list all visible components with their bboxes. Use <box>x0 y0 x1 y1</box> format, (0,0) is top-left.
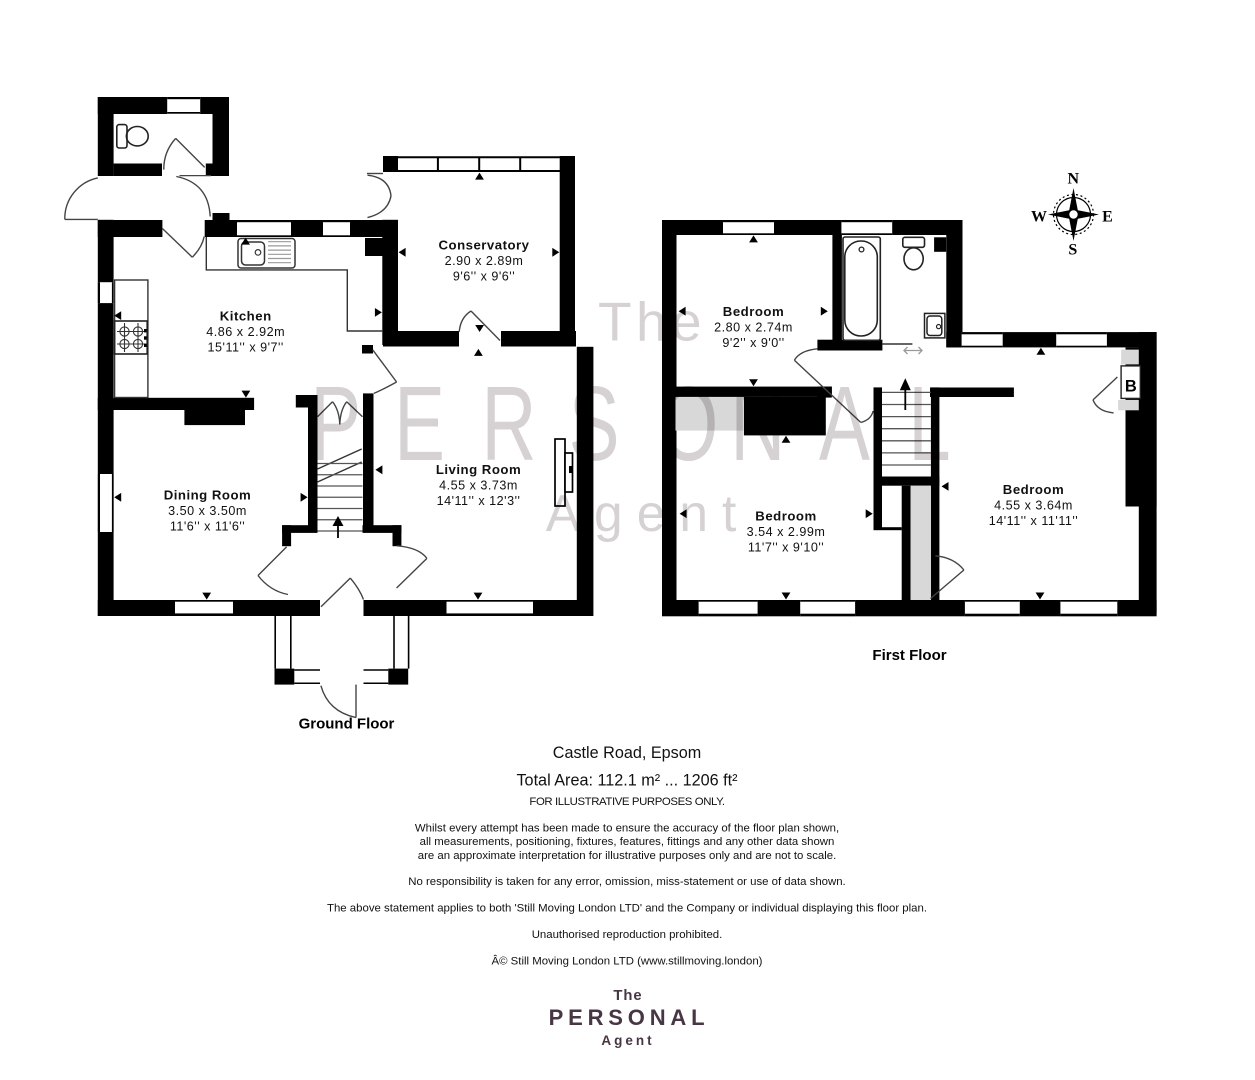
svg-text:all measurements, positioning,: all measurements, positioning, fixtures,… <box>420 836 835 848</box>
svg-text:W: W <box>1031 209 1047 226</box>
svg-text:Conservatory: Conservatory <box>438 237 529 252</box>
svg-text:B: B <box>1125 378 1137 396</box>
svg-text:E: E <box>1102 209 1113 226</box>
svg-text:L: L <box>908 364 950 483</box>
svg-text:Kitchen: Kitchen <box>220 308 272 323</box>
svg-text:O: O <box>659 364 718 483</box>
svg-text:S: S <box>569 364 620 483</box>
svg-text:First Floor: First Floor <box>872 647 946 664</box>
svg-text:The: The <box>613 988 642 1004</box>
svg-text:Whilst every attempt has been: Whilst every attempt has been made to en… <box>415 823 839 835</box>
svg-text:11'6'' x 11'6'': 11'6'' x 11'6'' <box>170 519 245 533</box>
svg-text:Dining Room: Dining Room <box>164 487 252 502</box>
svg-text:14'11'' x 11'11'': 14'11'' x 11'11'' <box>989 514 1078 528</box>
svg-text:Unauthorised reproduction proh: Unauthorised reproduction prohibited. <box>532 929 723 941</box>
svg-text:Agent: Agent <box>601 1033 654 1048</box>
svg-text:N: N <box>730 364 785 483</box>
svg-text:Ground Floor: Ground Floor <box>299 716 395 733</box>
svg-text:4.86 x 2.92m: 4.86 x 2.92m <box>206 325 285 339</box>
svg-text:9'6'' x 9'6'': 9'6'' x 9'6'' <box>453 269 515 283</box>
svg-text:Bedroom: Bedroom <box>755 509 816 524</box>
svg-text:4.55 x 3.64m: 4.55 x 3.64m <box>994 498 1073 512</box>
svg-text:are an approximate interpretat: are an approximate interpretation for il… <box>418 850 837 862</box>
svg-text:Bedroom: Bedroom <box>723 304 784 319</box>
svg-text:E: E <box>394 364 445 483</box>
svg-text:Â© Still Moving London LTD (ww: Â© Still Moving London LTD (www.stillmov… <box>492 955 763 968</box>
svg-text:The: The <box>598 291 706 353</box>
svg-text:S: S <box>1068 242 1077 259</box>
svg-text:11'7'' x 9'10'': 11'7'' x 9'10'' <box>748 541 824 555</box>
svg-text:2.90 x 2.89m: 2.90 x 2.89m <box>445 254 524 268</box>
svg-text:N: N <box>1068 171 1080 188</box>
svg-text:3.54 x 2.99m: 3.54 x 2.99m <box>747 525 826 539</box>
svg-text:P: P <box>310 364 361 483</box>
svg-text:A: A <box>819 364 870 483</box>
svg-text:14'11'' x 12'3'': 14'11'' x 12'3'' <box>437 494 521 508</box>
svg-text:Bedroom: Bedroom <box>1003 482 1064 497</box>
svg-text:Agent: Agent <box>546 484 751 542</box>
svg-text:The above statement applies to: The above statement applies to both 'Sti… <box>327 903 927 915</box>
svg-text:2.80 x 2.74m: 2.80 x 2.74m <box>714 321 793 335</box>
svg-text:3.50 x 3.50m: 3.50 x 3.50m <box>168 504 247 518</box>
svg-text:15'11'' x 9'7'': 15'11'' x 9'7'' <box>208 340 284 354</box>
svg-text:9'2'' x 9'0'': 9'2'' x 9'0'' <box>722 336 784 350</box>
svg-text:No responsibility is taken for: No responsibility is taken for any error… <box>408 876 845 888</box>
svg-text:Total Area: 112.1 m² ... 1206: Total Area: 112.1 m² ... 1206 ft² <box>516 772 738 790</box>
svg-text:PERSONAL: PERSONAL <box>549 1005 710 1030</box>
svg-text:R: R <box>481 364 536 483</box>
svg-text:Castle Road, Epsom: Castle Road, Epsom <box>553 744 701 762</box>
svg-text:FOR ILLUSTRATIVE PURPOSES ONLY: FOR ILLUSTRATIVE PURPOSES ONLY. <box>529 796 724 808</box>
